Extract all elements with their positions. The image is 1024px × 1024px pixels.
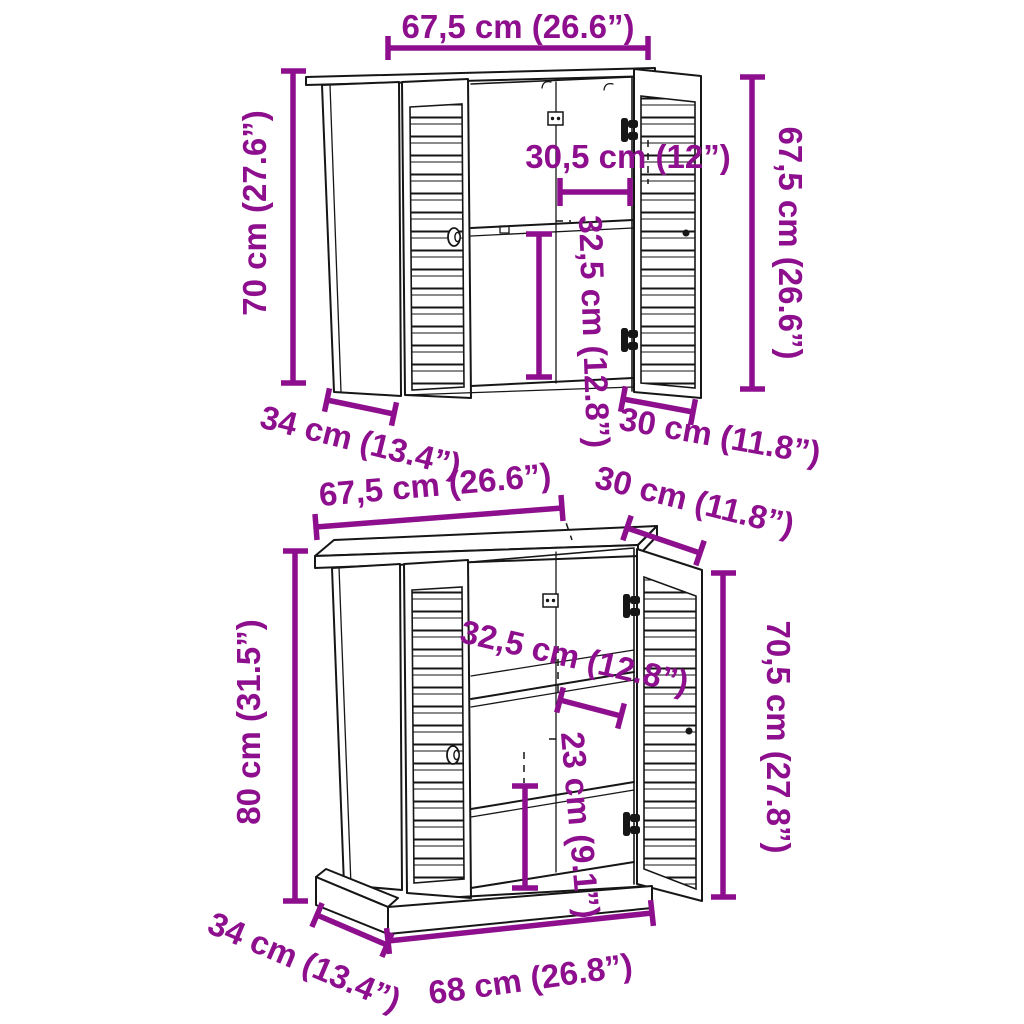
floor-cabinet-left-side-panel (332, 564, 402, 890)
wall-cabinet-top-board (306, 68, 655, 85)
dim-label-top-width: 67,5 cm (26.6”) (402, 8, 635, 45)
dim-line-height-left (281, 71, 306, 383)
floor-cabinet-shelf2 (471, 782, 634, 809)
floor-cabinet-left-door-louvers (412, 587, 464, 883)
dim-label-width-base: 68 cm (26.8”) (426, 946, 635, 1011)
wall-mount-bracket-icon (548, 112, 563, 125)
floor-cabinet-shelf1-underside (471, 680, 634, 707)
cabinet-dimension-drawing: 67,5 cm (26.6”) 70 cm (27.6”) 67,5 cm (2… (0, 0, 1024, 1024)
floor-cabinet-floor-board (471, 862, 634, 888)
dim-label-inner-height: 32,5 cm (12.8”) (572, 215, 617, 449)
dimension-diagram: 67,5 cm (26.6”) 70 cm (27.6”) 67,5 cm (2… (0, 0, 1024, 1024)
dim-label-inner-width: 30,5 cm (12”) (525, 138, 730, 175)
dim-label-height-left: 80 cm (31.5”) (230, 619, 267, 824)
floor-cabinet-drawing (315, 526, 702, 934)
wall-cabinet-drawing (306, 68, 701, 398)
floor-cabinet-left-door-knob-icon (447, 746, 459, 764)
wall-cabinet-left-door-louvers (410, 104, 464, 390)
wall-hanger-icon (542, 82, 551, 88)
dim-line-inner-upper (557, 687, 625, 728)
dim-label-depth-right: 30 cm (11.8”) (617, 400, 824, 472)
dim-label-height-left: 70 cm (27.6”) (236, 110, 273, 315)
wall-cabinet-left-side-panel (322, 82, 401, 396)
floor-cabinet-shelf2-underside (471, 790, 634, 817)
dim-label-height-right: 70,5 cm (27.8”) (760, 621, 797, 854)
floor-cabinet-right-door-knob-icon (686, 728, 693, 735)
wall-hanger-icon (604, 84, 613, 90)
dim-line-height-right (740, 77, 765, 389)
dim-label-height-right: 67,5 cm (26.6”) (772, 127, 809, 360)
dim-line-height-right (711, 573, 736, 897)
dim-line-height-left (283, 551, 308, 901)
wall-mount-bracket-icon (543, 594, 558, 607)
wall-cabinet-right-door-knob-icon (683, 230, 690, 237)
wall-cabinet-left-door-knob-icon (448, 228, 460, 246)
dim-line-inner-height (526, 234, 552, 377)
dim-line-inner-width (560, 178, 630, 206)
